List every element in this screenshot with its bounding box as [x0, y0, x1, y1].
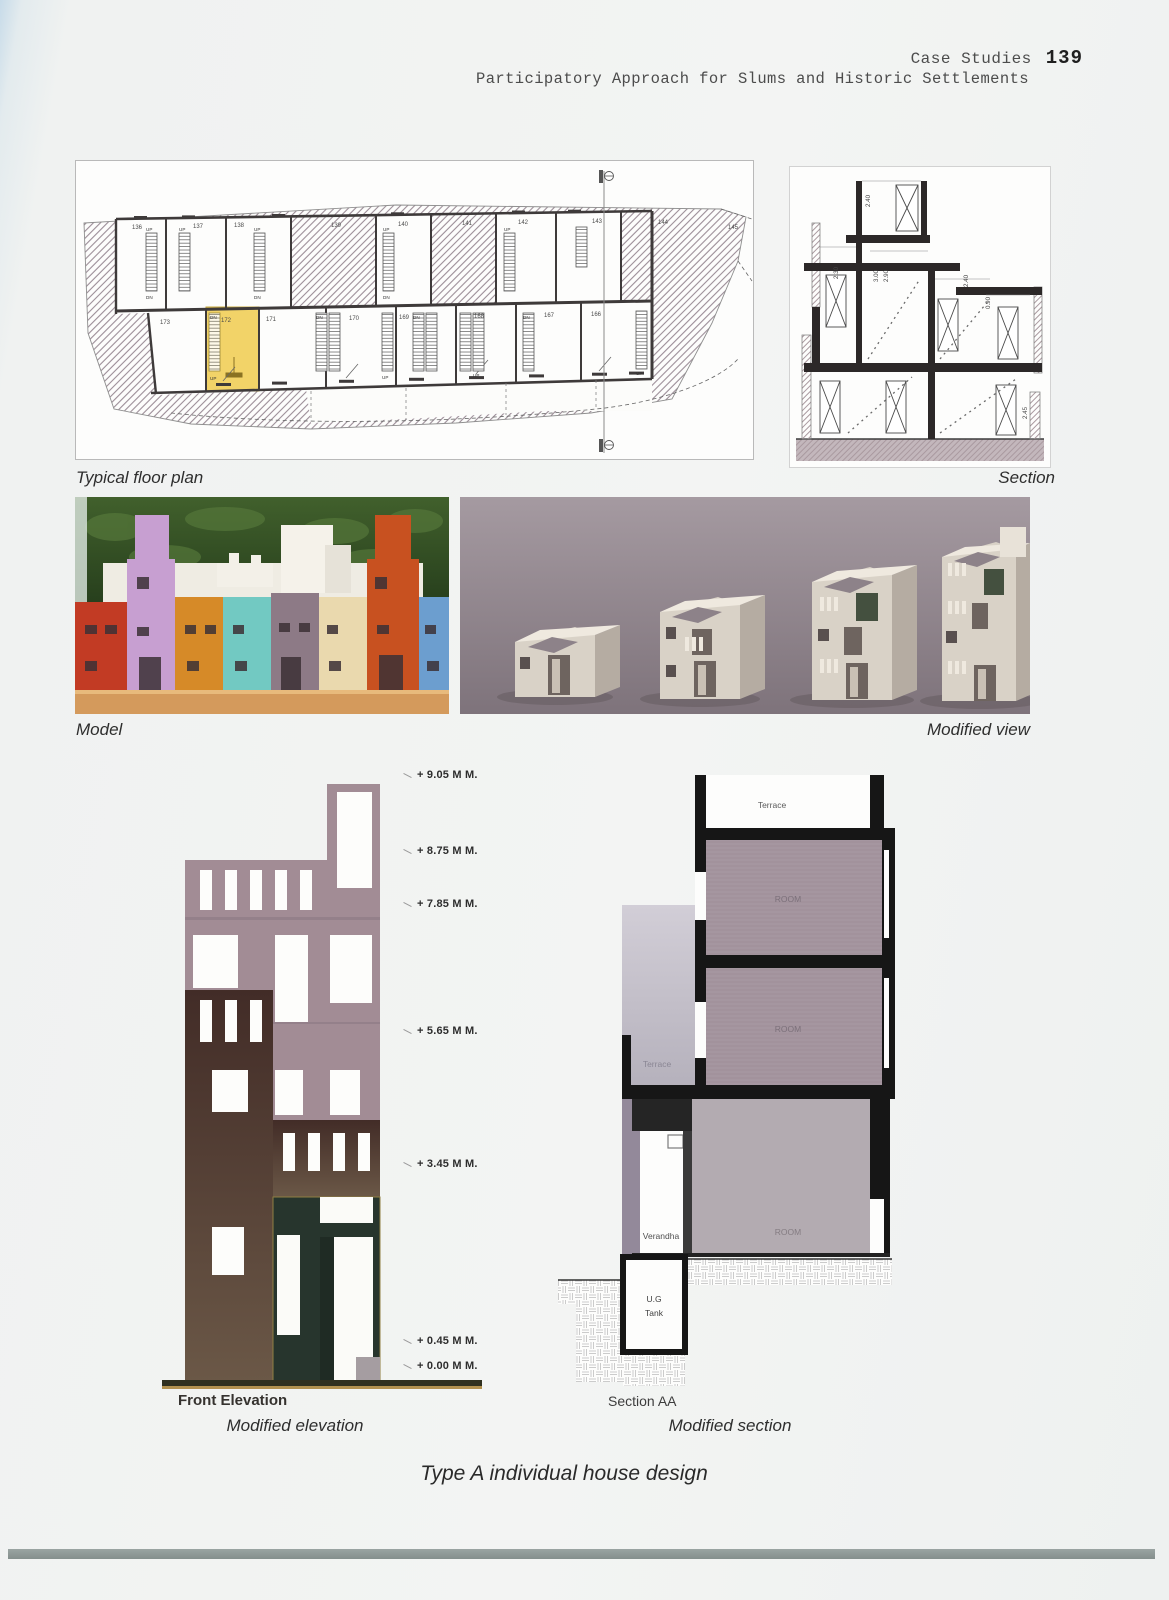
svg-text:143: 143 — [592, 219, 603, 225]
svg-text:U.G: U.G — [646, 1294, 661, 1304]
floor-plan-caption: Typical floor plan — [76, 468, 203, 488]
svg-text:2.30: 2.30 — [833, 266, 840, 279]
level-marker: + 9.05 M M. — [403, 769, 513, 781]
svg-text:171: 171 — [266, 317, 277, 323]
ground-and-tank — [558, 1257, 892, 1386]
svg-text:0.90: 0.90 — [985, 296, 992, 309]
header-line: Case Studies139 — [911, 47, 1083, 69]
svg-text:DN: DN — [413, 315, 420, 320]
section-marker-icon — [599, 170, 614, 183]
svg-text:UP: UP — [210, 376, 216, 381]
section-aa-label: Section AA — [608, 1393, 677, 1409]
svg-text:142: 142 — [518, 220, 529, 226]
svg-text:167: 167 — [544, 313, 555, 319]
svg-text:ROOM: ROOM — [775, 1227, 801, 1237]
section-caption: Section — [998, 468, 1055, 488]
svg-text:ROOM: ROOM — [775, 894, 801, 904]
svg-text:Terrace: Terrace — [758, 800, 787, 810]
svg-text:UP: UP — [504, 227, 510, 232]
elevation-drawing — [160, 745, 490, 1395]
section-drawing: 2.40 2.30 3.00 2.90 2.40 0.90 2.45 — [790, 167, 1050, 467]
floor-plan-figure: UP UP UP UP UP DN DN DN DN DN DN DN UP U… — [75, 160, 754, 460]
svg-text:136: 136 — [132, 225, 143, 231]
footer-rule — [8, 1549, 1155, 1559]
svg-text:UP: UP — [636, 371, 642, 376]
level-marker: + 7.85 M M. — [403, 898, 513, 910]
front-elevation-label: Front Elevation — [178, 1392, 287, 1409]
top-terrace — [695, 775, 895, 840]
room-1 — [695, 840, 895, 968]
section-aa-drawing: Terrace ROOM Terrace ROOM Verandha ROOM … — [540, 740, 900, 1390]
svg-text:UP: UP — [383, 227, 389, 232]
page-number: 139 — [1046, 47, 1083, 69]
mid-terrace-block — [622, 905, 695, 1100]
svg-text:144: 144 — [658, 220, 669, 226]
entry-block — [273, 1197, 380, 1382]
floor-plan-drawing: UP UP UP UP UP DN DN DN DN DN DN DN UP U… — [76, 161, 753, 459]
ground-line — [162, 1380, 482, 1389]
svg-text:137: 137 — [193, 224, 204, 230]
svg-text:3.00: 3.00 — [873, 269, 880, 282]
level-marker: + 5.65 M M. — [403, 1025, 513, 1037]
svg-text:DN: DN — [210, 315, 217, 320]
window-x-icons — [820, 185, 1018, 435]
svg-text:2.90: 2.90 — [883, 269, 890, 282]
section-ground — [796, 439, 1044, 461]
svg-text:UP: UP — [179, 227, 185, 232]
svg-text:DN: DN — [383, 295, 390, 300]
section-figure: 2.40 2.30 3.00 2.90 2.40 0.90 2.45 — [789, 166, 1051, 468]
figure-title: Type A individual house design — [384, 1462, 744, 1486]
svg-text:138: 138 — [234, 223, 245, 229]
header-title: Case Studies — [911, 50, 1032, 68]
svg-text:2.40: 2.40 — [865, 194, 872, 207]
svg-text:DN: DN — [523, 315, 530, 320]
svg-text:172: 172 — [221, 318, 232, 324]
svg-text:Terrace: Terrace — [643, 1059, 672, 1069]
svg-text:169: 169 — [399, 315, 410, 321]
svg-text:141: 141 — [462, 221, 473, 227]
sky-edge — [75, 497, 87, 607]
svg-text:DN: DN — [316, 315, 323, 320]
book-page: Case Studies139 Participatory Approach f… — [0, 0, 1169, 1600]
modified-view-caption: Modified view — [927, 720, 1030, 740]
svg-text:140: 140 — [398, 222, 409, 228]
setback-void — [621, 211, 652, 301]
svg-text:ROOM: ROOM — [775, 1024, 801, 1034]
header-subtitle: Participatory Approach for Slums and His… — [476, 70, 1029, 88]
level-marker: + 3.45 M M. — [403, 1158, 513, 1170]
svg-text:166: 166 — [591, 312, 602, 318]
model-ground-edge — [75, 690, 449, 694]
model-caption: Model — [76, 720, 122, 740]
svg-text:UP: UP — [382, 375, 388, 380]
svg-text:Verandha: Verandha — [643, 1231, 680, 1241]
svg-text:139: 139 — [331, 223, 342, 229]
svg-text:170: 170 — [349, 316, 360, 322]
svg-text:2.45: 2.45 — [1022, 406, 1029, 419]
section-marker-icon — [599, 439, 614, 452]
svg-text:UP: UP — [146, 227, 152, 232]
svg-text:173: 173 — [160, 320, 171, 326]
modified-section-caption: Modified section — [595, 1416, 865, 1436]
level-marker: + 8.75 M M. — [403, 845, 513, 857]
modified-elevation-caption: Modified elevation — [160, 1416, 430, 1436]
svg-text:UP: UP — [254, 227, 260, 232]
svg-text:DN: DN — [146, 295, 153, 300]
svg-text:DN: DN — [254, 295, 261, 300]
svg-text:168: 168 — [474, 314, 485, 320]
level-marker: + 0.00 M M. — [403, 1360, 513, 1372]
modified-view-photo — [460, 497, 1030, 714]
model-photo — [75, 497, 449, 714]
level-marker: + 0.45 M M. — [403, 1335, 513, 1347]
svg-text:Tank: Tank — [645, 1308, 664, 1318]
svg-text:2.40: 2.40 — [963, 274, 970, 287]
ug-tank — [623, 1257, 685, 1352]
svg-text:145: 145 — [728, 225, 739, 231]
svg-text:UP: UP — [473, 373, 479, 378]
